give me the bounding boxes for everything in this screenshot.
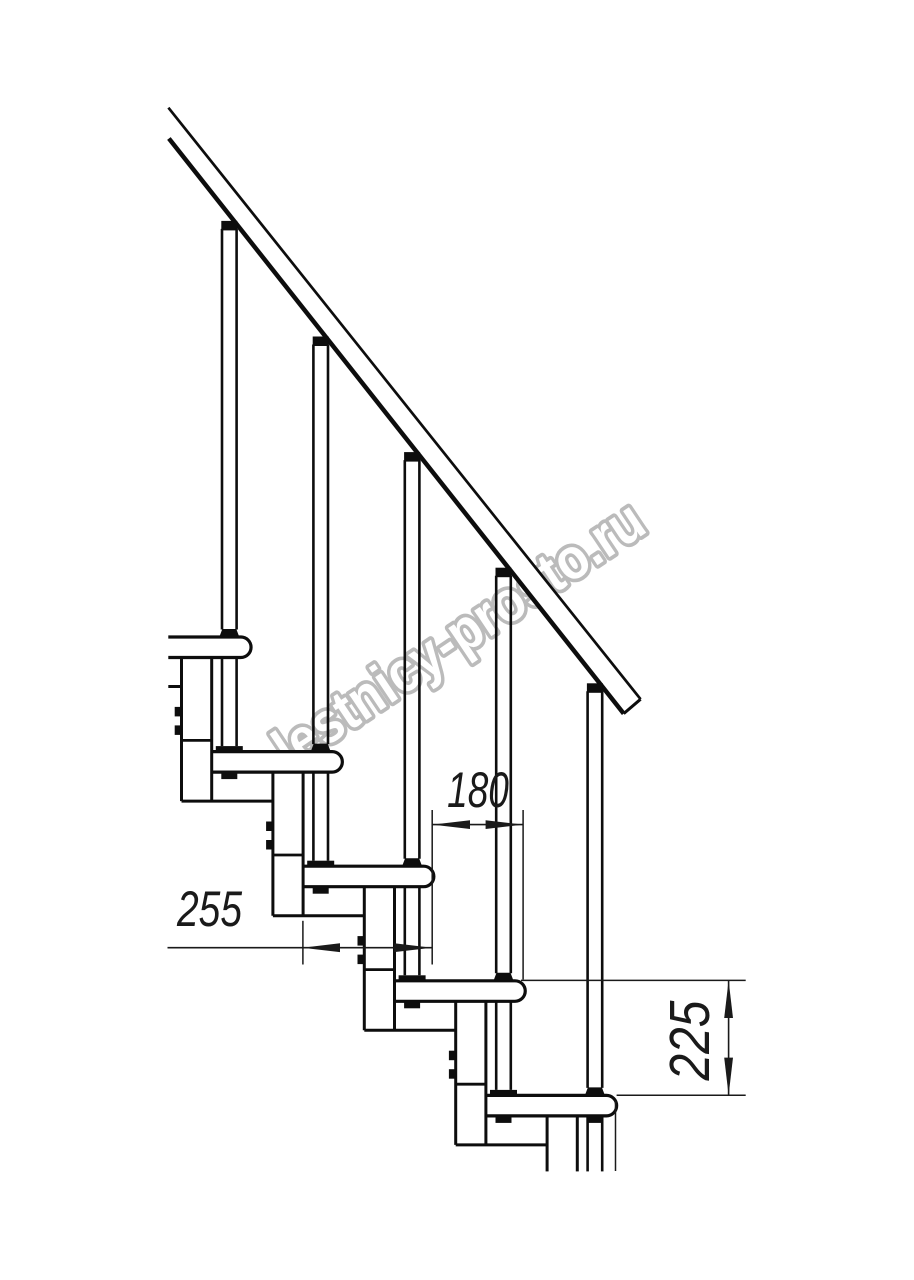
svg-text:180: 180 bbox=[447, 763, 509, 819]
svg-text:lestnicy-prosto.ru: lestnicy-prosto.ru bbox=[261, 487, 656, 781]
svg-text:255: 255 bbox=[176, 880, 243, 937]
svg-text:225: 225 bbox=[658, 1000, 722, 1081]
